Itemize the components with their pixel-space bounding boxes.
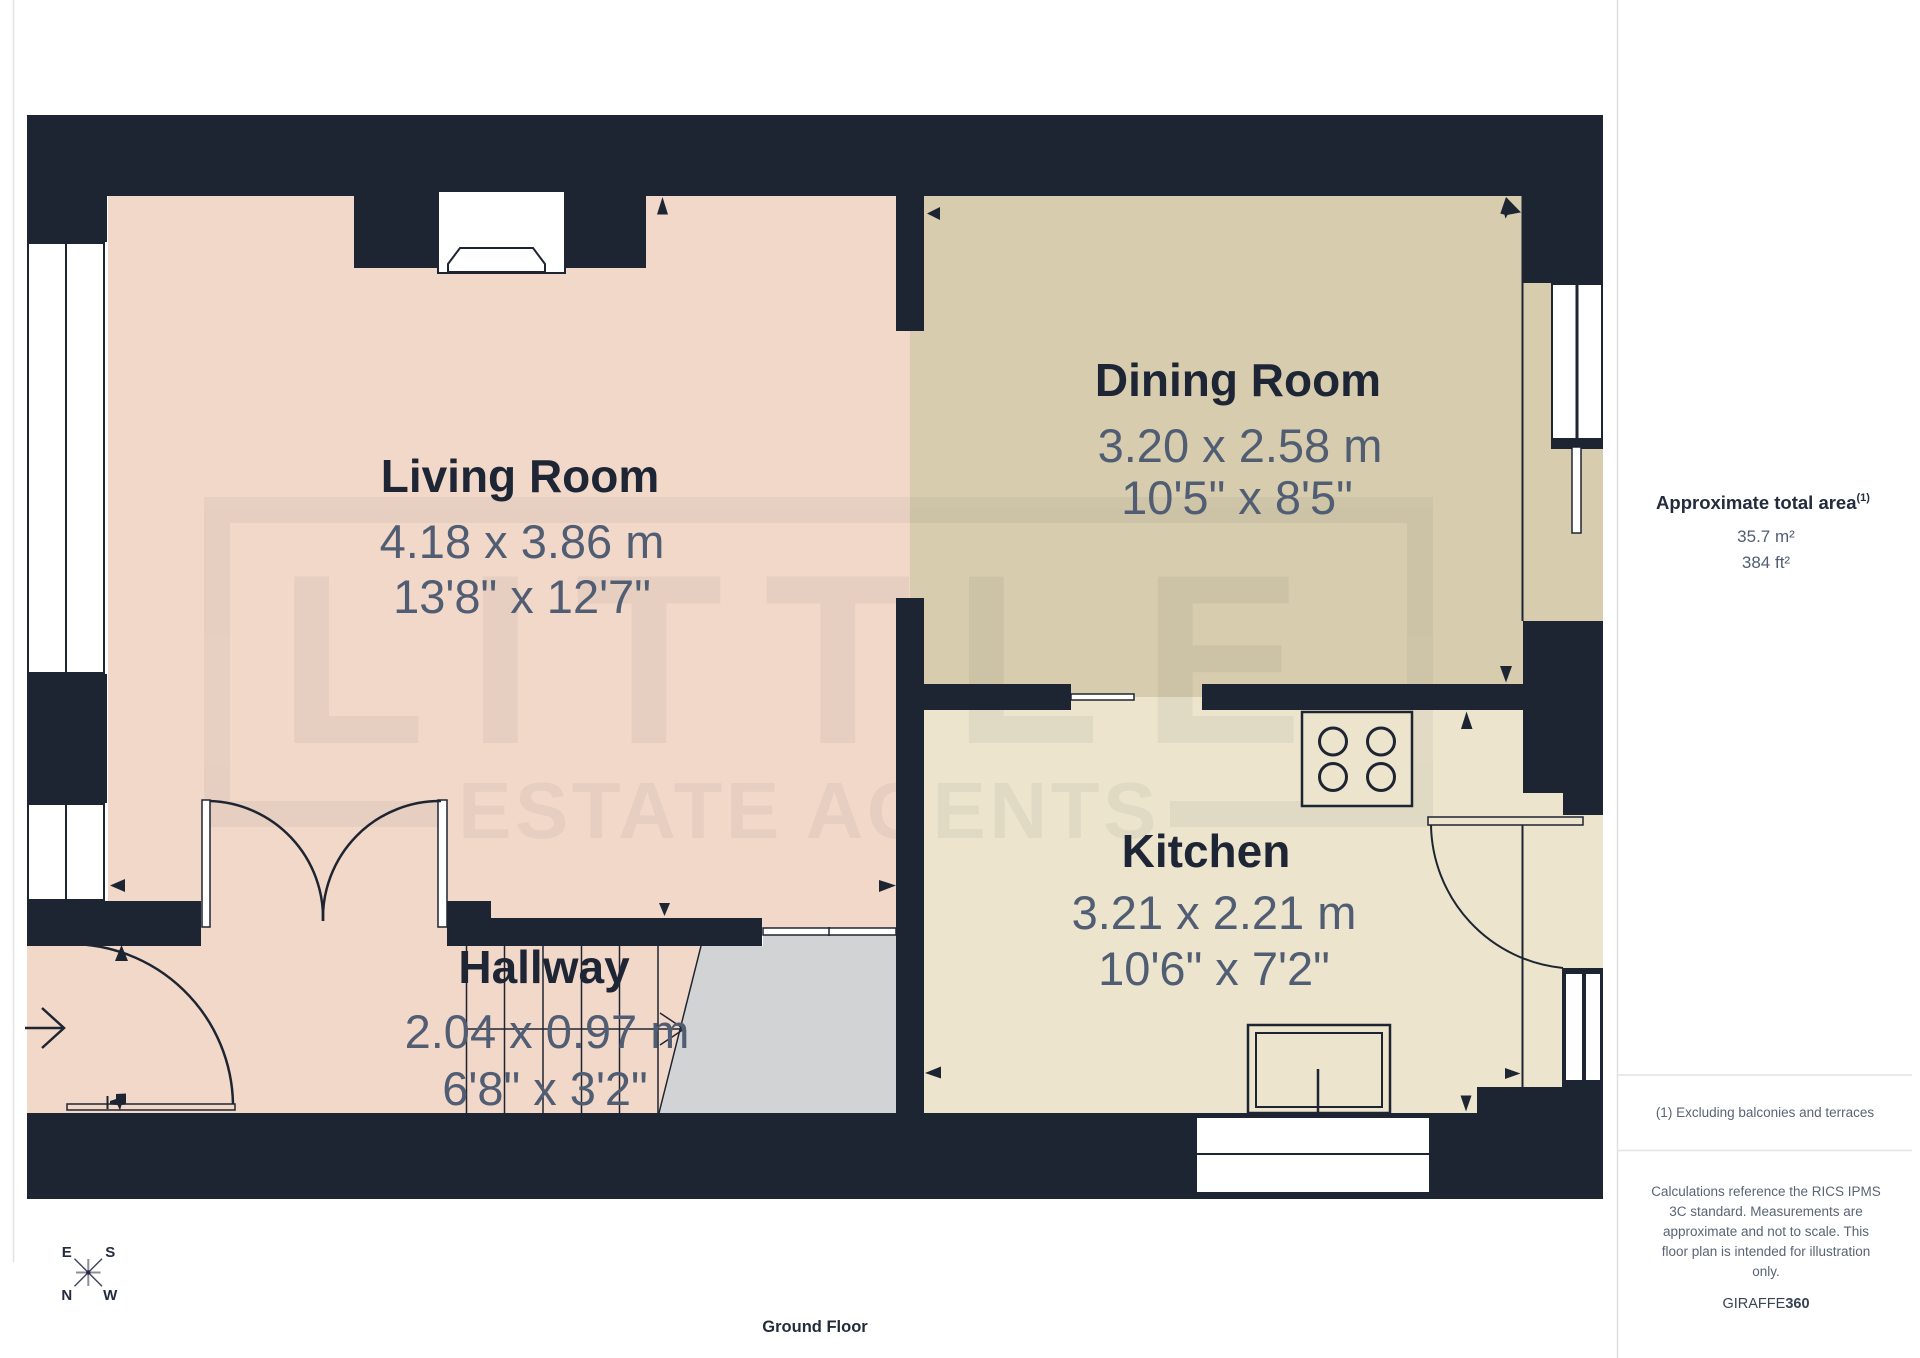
svg-text:13'8" x 12'7": 13'8" x 12'7" <box>393 570 651 623</box>
svg-text:Calculations reference the RIC: Calculations reference the RICS IPMS <box>1651 1184 1881 1199</box>
svg-text:approximate and not to scale.: approximate and not to scale. This <box>1663 1224 1869 1239</box>
svg-text:Hallway: Hallway <box>458 941 630 993</box>
svg-text:6'8" x 3'2": 6'8" x 3'2" <box>442 1062 648 1115</box>
svg-text:GIRAFFE360: GIRAFFE360 <box>1722 1296 1809 1312</box>
svg-text:S: S <box>105 1244 115 1261</box>
svg-text:ESTATE AGENTS: ESTATE AGENTS <box>458 766 1160 855</box>
svg-text:3.21 x 2.21 m: 3.21 x 2.21 m <box>1072 886 1357 939</box>
svg-text:(1) Excluding balconies and te: (1) Excluding balconies and terraces <box>1656 1105 1875 1120</box>
svg-text:4.18 x 3.86 m: 4.18 x 3.86 m <box>380 515 665 568</box>
svg-text:N: N <box>61 1287 72 1304</box>
svg-text:W: W <box>103 1287 118 1304</box>
svg-text:Kitchen: Kitchen <box>1122 825 1291 877</box>
svg-text:floor plan is intended for ill: floor plan is intended for illustration <box>1662 1244 1871 1259</box>
svg-text:384 ft²: 384 ft² <box>1742 553 1791 572</box>
svg-text:3.20 x 2.58 m: 3.20 x 2.58 m <box>1098 419 1383 472</box>
svg-text:Dining Room: Dining Room <box>1095 354 1381 406</box>
svg-text:Ground Floor: Ground Floor <box>762 1318 868 1336</box>
svg-text:Approximate total area(1): Approximate total area(1) <box>1656 492 1870 513</box>
svg-text:E: E <box>62 1244 72 1261</box>
svg-text:35.7 m²: 35.7 m² <box>1737 527 1795 546</box>
svg-text:2.04 x 0.97 m: 2.04 x 0.97 m <box>405 1005 690 1058</box>
svg-text:10'6" x 7'2": 10'6" x 7'2" <box>1098 942 1330 995</box>
svg-text:only.: only. <box>1752 1264 1780 1279</box>
svg-text:Living Room: Living Room <box>381 450 660 502</box>
svg-text:10'5" x 8'5": 10'5" x 8'5" <box>1121 471 1353 524</box>
svg-text:3C standard. Measurements are: 3C standard. Measurements are <box>1669 1204 1863 1219</box>
